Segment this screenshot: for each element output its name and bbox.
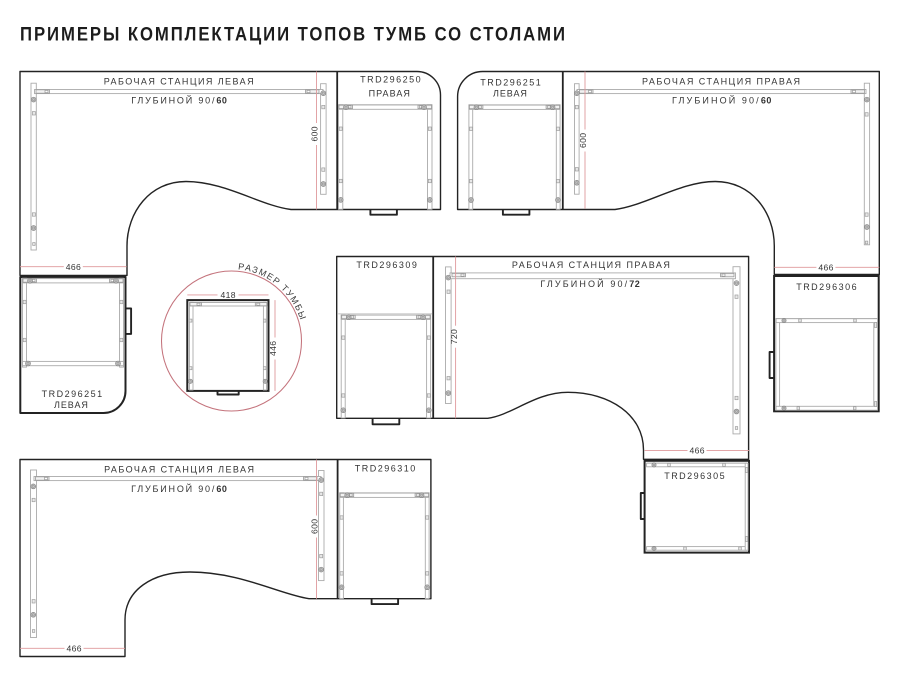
svg-text:ЛЕВАЯ: ЛЕВАЯ xyxy=(54,400,88,410)
svg-text:TRD296309: TRD296309 xyxy=(356,260,417,270)
svg-text:60: 60 xyxy=(216,484,227,494)
svg-text:600: 600 xyxy=(310,519,320,534)
svg-text:720: 720 xyxy=(449,329,459,344)
svg-text:TRD296310: TRD296310 xyxy=(355,464,416,474)
svg-text:TRD296250: TRD296250 xyxy=(360,75,421,85)
svg-text:60: 60 xyxy=(761,95,772,105)
svg-text:466: 466 xyxy=(67,643,82,653)
svg-text:РАБОЧАЯ СТАНЦИЯ ПРАВАЯ: РАБОЧАЯ СТАНЦИЯ ПРАВАЯ xyxy=(512,260,670,270)
svg-text:418: 418 xyxy=(221,290,236,300)
svg-text:600: 600 xyxy=(310,126,320,141)
svg-text:РАБОЧАЯ СТАНЦИЯ ПРАВАЯ: РАБОЧАЯ СТАНЦИЯ ПРАВАЯ xyxy=(642,77,800,87)
svg-text:TRD296251: TRD296251 xyxy=(480,77,541,87)
svg-text:72: 72 xyxy=(629,279,640,289)
svg-text:TRD296251: TRD296251 xyxy=(42,389,103,399)
svg-text:446: 446 xyxy=(268,341,278,356)
svg-text:ЛЕВАЯ: ЛЕВАЯ xyxy=(493,89,527,99)
svg-text:ПРАВАЯ: ПРАВАЯ xyxy=(369,88,410,98)
svg-text:466: 466 xyxy=(66,262,81,272)
svg-text:466: 466 xyxy=(690,446,705,456)
svg-text:TRD296305: TRD296305 xyxy=(664,471,725,481)
svg-text:TRD296306: TRD296306 xyxy=(796,282,857,292)
svg-text:466: 466 xyxy=(818,262,833,272)
svg-text:600: 600 xyxy=(578,133,588,148)
svg-text:60: 60 xyxy=(216,95,227,105)
